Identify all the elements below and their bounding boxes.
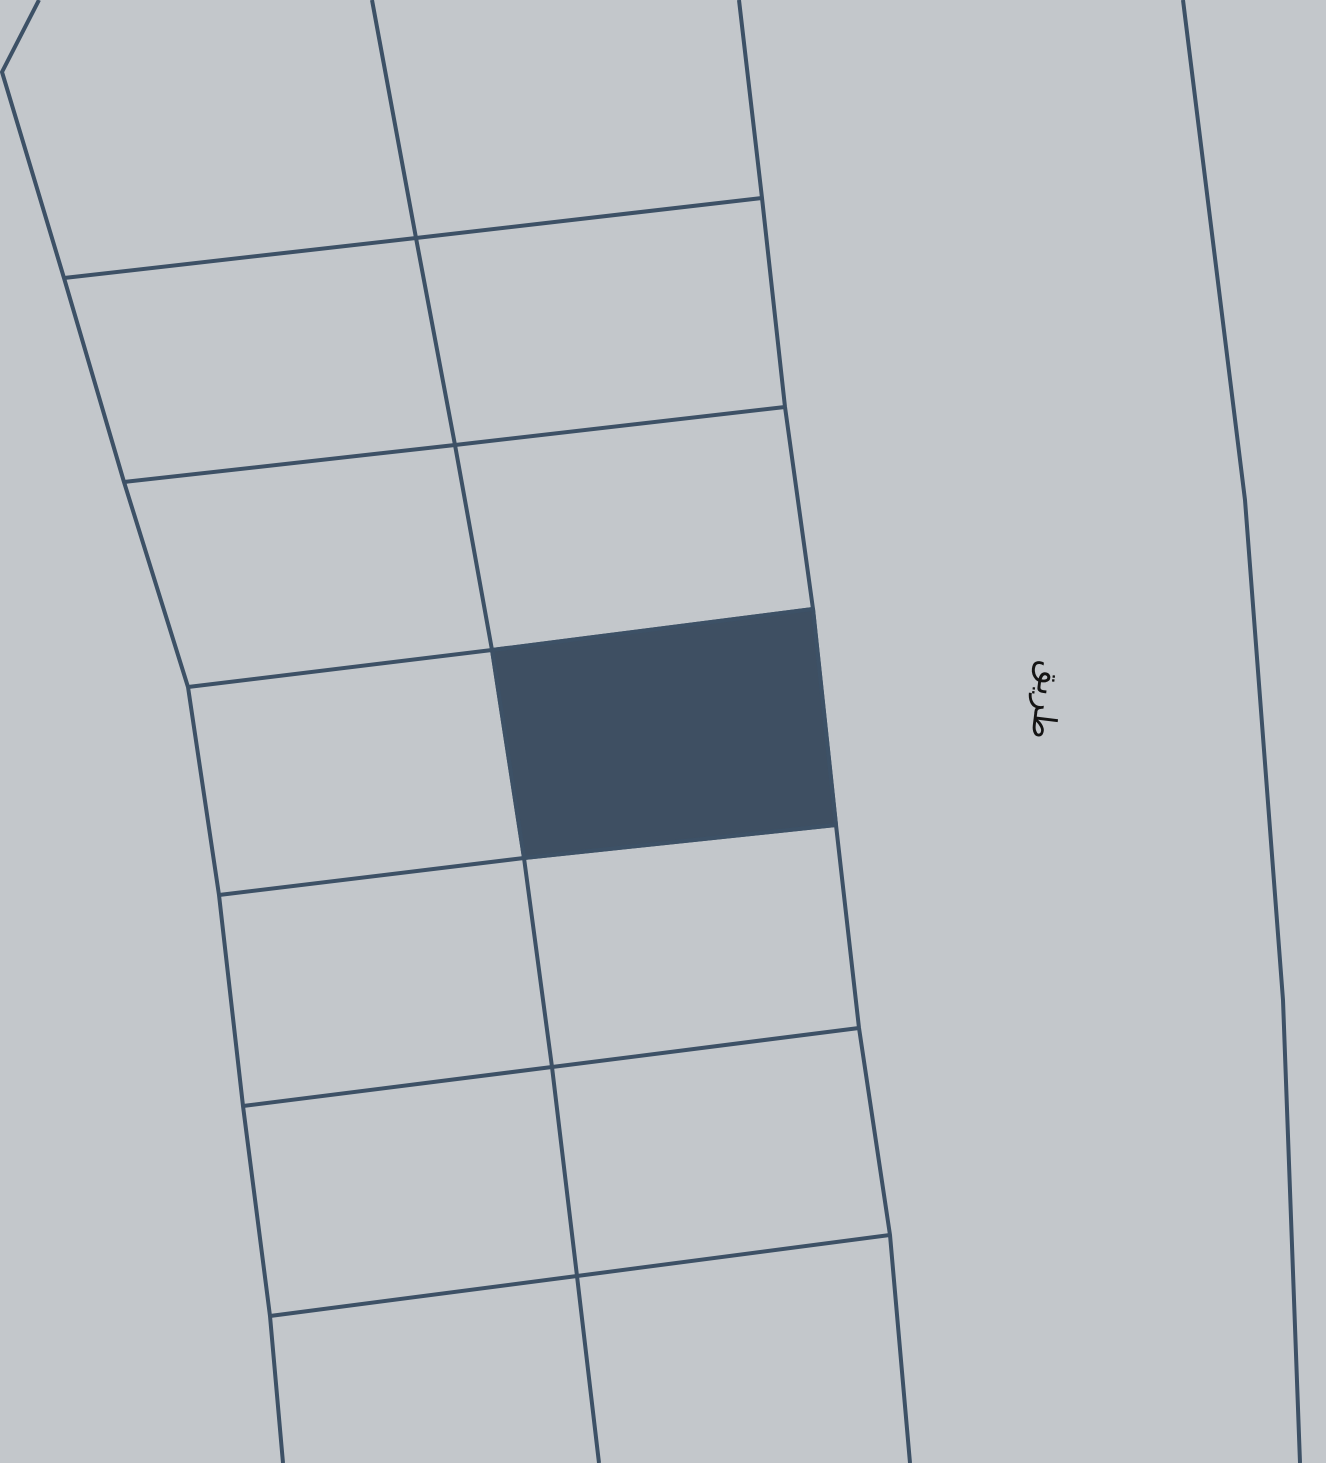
left-block-boundary <box>2 0 283 1463</box>
road-edge-boundary <box>1183 0 1300 1463</box>
cross-boundary-5 <box>243 1028 859 1106</box>
cross-boundary-1 <box>64 198 762 278</box>
map-canvas[interactable]: طريق <box>0 0 1326 1463</box>
map-svg <box>0 0 1326 1463</box>
selected-parcel[interactable] <box>492 609 836 858</box>
road-label: طريق <box>1026 659 1067 741</box>
cross-boundary-2 <box>124 407 785 482</box>
